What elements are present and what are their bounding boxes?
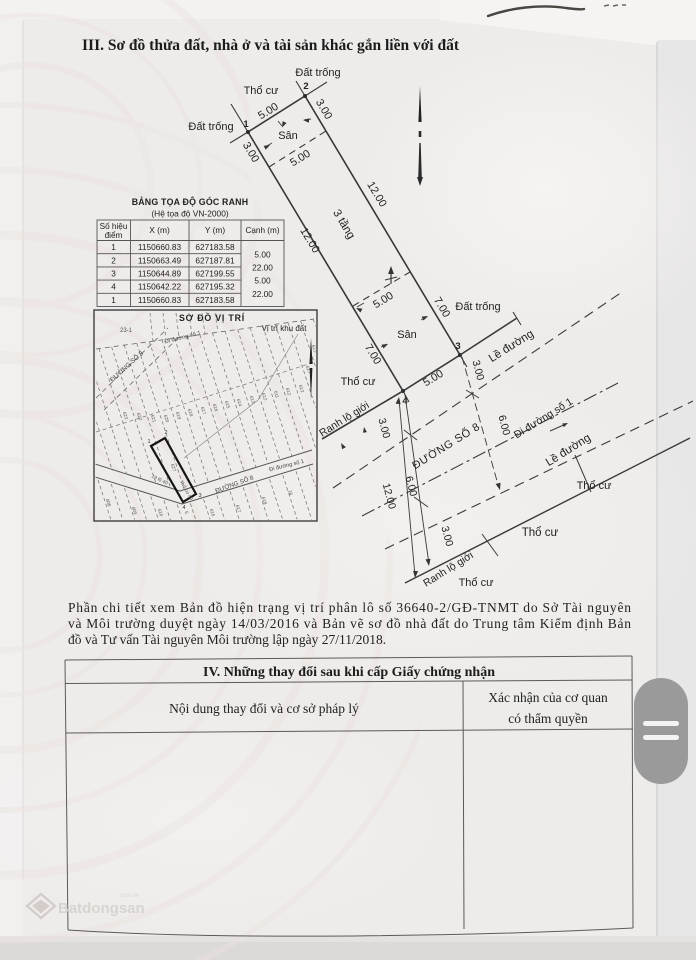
svg-text:5.00: 5.00 bbox=[254, 276, 271, 286]
svg-text:2: 2 bbox=[303, 81, 308, 92]
svg-text:điểm: điểm bbox=[105, 230, 123, 240]
svg-text:BẢNG TỌA ĐỘ GÓC RANH: BẢNG TỌA ĐỘ GÓC RANH bbox=[132, 196, 249, 207]
svg-text:Đất trống: Đất trống bbox=[295, 67, 340, 79]
svg-text:Đất trống: Đất trống bbox=[455, 301, 500, 313]
svg-text:4: 4 bbox=[182, 505, 185, 511]
svg-text:Thổ cư: Thổ cư bbox=[577, 480, 613, 492]
svg-text:X (m): X (m) bbox=[149, 225, 170, 235]
svg-text:Đất trống: Đất trống bbox=[188, 121, 233, 133]
svg-text:1: 1 bbox=[147, 439, 150, 445]
svg-text:3: 3 bbox=[455, 341, 460, 352]
svg-text:Xác nhận của cơ quan: Xác nhận của cơ quan bbox=[488, 690, 608, 705]
svg-text:1150660.83: 1150660.83 bbox=[138, 295, 182, 305]
svg-text:1150642.22: 1150642.22 bbox=[138, 282, 182, 292]
svg-text:627183.58: 627183.58 bbox=[195, 242, 235, 252]
svg-text:III. Sơ đồ thửa đất, nhà ở và: III. Sơ đồ thửa đất, nhà ở và tài sản kh… bbox=[82, 37, 460, 54]
svg-text:Thổ cư: Thổ cư bbox=[244, 85, 280, 97]
svg-text:3: 3 bbox=[198, 493, 201, 499]
svg-text:Phần chi tiết xem Bản đồ hiện: Phần chi tiết xem Bản đồ hiện trạng vị t… bbox=[68, 600, 631, 615]
svg-text:627187.81: 627187.81 bbox=[195, 255, 235, 265]
svg-text:627183.58: 627183.58 bbox=[195, 295, 235, 305]
svg-text:1150644.89: 1150644.89 bbox=[138, 269, 182, 279]
svg-text:Thổ cư: Thổ cư bbox=[522, 527, 559, 539]
svg-text:có thẩm quyền: có thẩm quyền bbox=[508, 711, 588, 726]
svg-text:.com.vn: .com.vn bbox=[118, 893, 139, 899]
svg-text:627199.55: 627199.55 bbox=[195, 269, 235, 279]
svg-text:2: 2 bbox=[111, 255, 116, 265]
svg-text:1: 1 bbox=[243, 119, 249, 130]
svg-text:(Hệ tọa độ VN-2000): (Hệ tọa độ VN-2000) bbox=[151, 209, 228, 219]
svg-text:Nội dung thay đổi và cơ sở phá: Nội dung thay đổi và cơ sở pháp lý bbox=[169, 701, 359, 716]
svg-text:5.00: 5.00 bbox=[254, 249, 271, 259]
svg-text:Batdongsan: Batdongsan bbox=[58, 900, 145, 917]
svg-text:Sân: Sân bbox=[278, 130, 298, 142]
svg-text:và Môi trường duyệt ngày 14/03: và Môi trường duyệt ngày 14/03/2016 và B… bbox=[68, 616, 631, 631]
svg-text:22.00: 22.00 bbox=[252, 289, 273, 299]
svg-text:23-1: 23-1 bbox=[120, 328, 133, 334]
svg-text:627195.32: 627195.32 bbox=[195, 282, 235, 292]
svg-text:1: 1 bbox=[111, 295, 116, 305]
svg-text:Sân: Sân bbox=[397, 329, 417, 341]
svg-text:4: 4 bbox=[111, 282, 116, 292]
svg-text:3: 3 bbox=[111, 269, 116, 279]
svg-text:Số hiệu: Số hiệu bbox=[100, 222, 128, 231]
svg-text:1150660.83: 1150660.83 bbox=[138, 242, 182, 252]
svg-text:22.00: 22.00 bbox=[252, 263, 273, 273]
svg-text:Cạnh (m): Cạnh (m) bbox=[245, 226, 279, 235]
svg-text:Y (m): Y (m) bbox=[205, 225, 226, 235]
svg-text:1: 1 bbox=[111, 242, 116, 252]
svg-text:Thổ cư: Thổ cư bbox=[341, 376, 377, 388]
svg-text:2: 2 bbox=[164, 430, 167, 436]
svg-text:IV. Những thay đổi sau khi cấp: IV. Những thay đổi sau khi cấp Giấy chứn… bbox=[203, 665, 495, 680]
svg-text:Thổ cư: Thổ cư bbox=[459, 577, 495, 589]
svg-text:1150663.49: 1150663.49 bbox=[138, 255, 182, 265]
svg-text:đồ và Tư vấn Tài nguyên Môi tr: đồ và Tư vấn Tài nguyên Môi trường lập n… bbox=[68, 632, 386, 647]
